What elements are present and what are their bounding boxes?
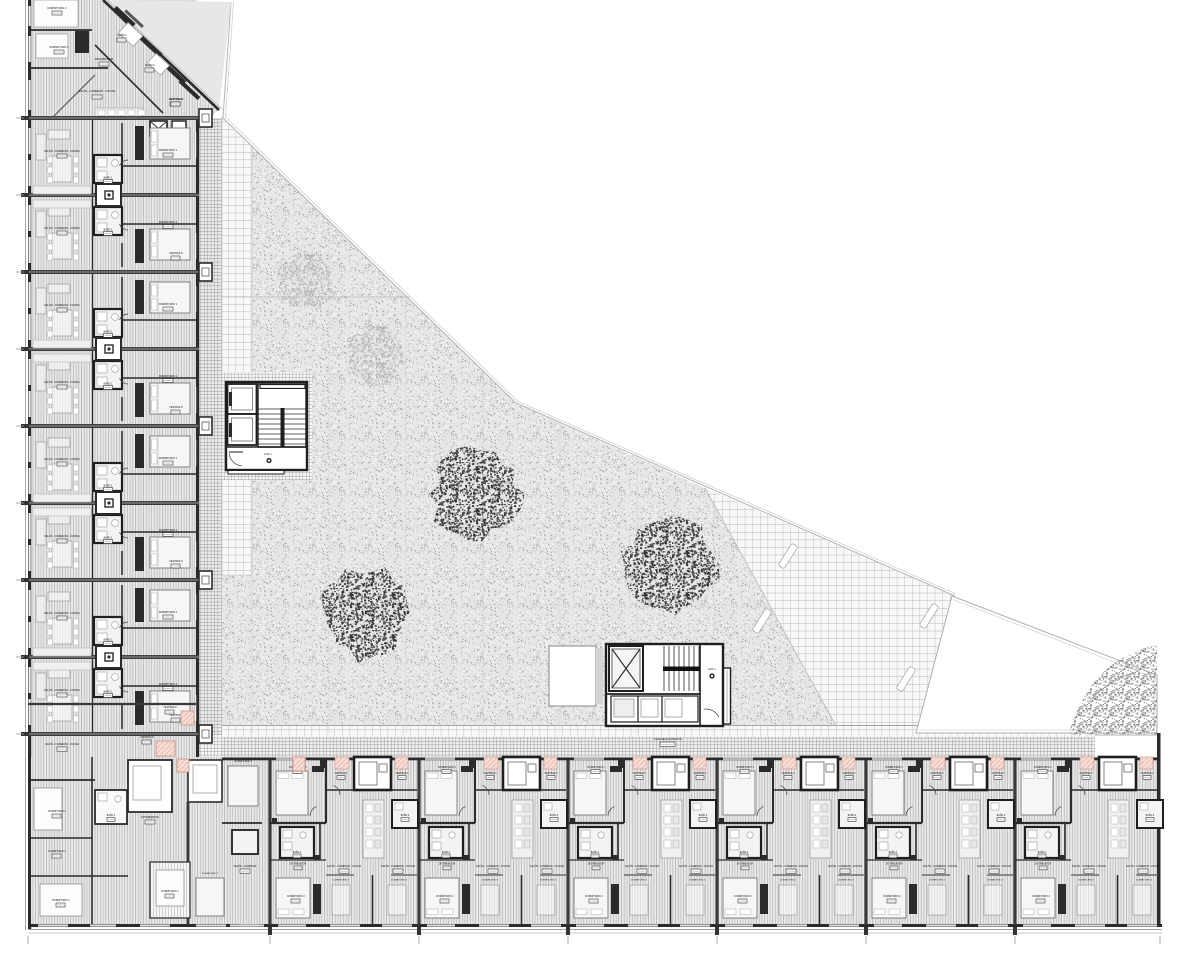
- svg-text:DISTRIBUIDOR: DISTRIBUIDOR: [886, 864, 903, 866]
- svg-text:DORMITORIO 2: DORMITORIO 2: [202, 873, 219, 875]
- svg-text:DISTRIBUIDOR: DISTRIBUIDOR: [737, 864, 754, 866]
- svg-text:BAÑO 1: BAÑO 1: [740, 851, 749, 854]
- svg-text:SALÓN - COMEDOR - COCINA: SALÓN - COMEDOR - COCINA: [44, 535, 80, 538]
- svg-text:DORMITORIO 3: DORMITORIO 3: [780, 880, 797, 882]
- svg-text:VESTIBULO: VESTIBULO: [169, 406, 183, 409]
- svg-text:DORMITORIO 1: DORMITORIO 1: [161, 890, 179, 893]
- svg-text:BAÑO 1: BAÑO 1: [104, 331, 113, 334]
- svg-text:BAÑO 1: BAÑO 1: [107, 814, 116, 817]
- svg-text:DORMITORIO 3: DORMITORIO 3: [929, 880, 946, 882]
- svg-text:BAÑO 2: BAÑO 2: [550, 814, 559, 817]
- svg-text:BAÑO 1: BAÑO 1: [104, 537, 113, 540]
- svg-text:BAÑO 1: BAÑO 1: [104, 177, 113, 180]
- svg-text:SALÓN - COMEDOR - COCINA: SALÓN - COMEDOR - COCINA: [530, 865, 565, 868]
- svg-text:BAÑO 2: BAÑO 2: [997, 814, 1006, 817]
- svg-text:DORMITORIO 1: DORMITORIO 1: [885, 766, 903, 769]
- svg-text:BAÑO 1: BAÑO 1: [293, 851, 302, 854]
- svg-text:VESTIBULO: VESTIBULO: [782, 773, 795, 775]
- svg-text:SALÓN - COMEDOR - COCINA: SALÓN - COMEDOR - COCINA: [828, 865, 863, 868]
- svg-text:DORMITORIO 3: DORMITORIO 3: [48, 850, 66, 853]
- svg-text:DISTRIBUIDOR: DISTRIBUIDOR: [95, 57, 114, 61]
- svg-text:DORMITORIO 1: DORMITORIO 1: [587, 766, 605, 769]
- svg-text:BAÑO 1: BAÑO 1: [442, 851, 451, 854]
- svg-text:DORMITORIO 3: DORMITORIO 3: [1136, 880, 1153, 882]
- svg-text:PASARELA EXTERIOR: PASARELA EXTERIOR: [654, 737, 681, 741]
- svg-text:BAÑO 2: BAÑO 2: [848, 814, 857, 817]
- svg-text:DORMITORIO 1: DORMITORIO 1: [52, 899, 70, 902]
- svg-text:SALÓN - COMEDOR - COCINA: SALÓN - COMEDOR - COCINA: [1126, 865, 1161, 868]
- svg-text:SALÓN - COMEDOR - COCINA: SALÓN - COMEDOR - COCINA: [44, 304, 80, 307]
- svg-text:SALÓN - COMEDOR: SALÓN - COMEDOR: [234, 865, 257, 868]
- svg-text:DORMITORIO 2: DORMITORIO 2: [436, 895, 454, 898]
- svg-text:VESTIBULO: VESTIBULO: [843, 773, 856, 775]
- svg-text:SALÓN - COMEDOR - COCINA: SALÓN - COMEDOR - COCINA: [44, 689, 80, 692]
- svg-text:BAÑO 1: BAÑO 1: [591, 851, 600, 854]
- svg-text:DORMITORIO 3: DORMITORIO 3: [48, 6, 68, 10]
- svg-text:DISTRIBUIDOR: DISTRIBUIDOR: [588, 864, 605, 866]
- svg-text:SALÓN - COMEDOR - COCINA: SALÓN - COMEDOR - COCINA: [44, 612, 80, 615]
- svg-text:BAÑO 1: BAÑO 1: [104, 229, 113, 232]
- svg-text:SALÓN - COMEDOR - COCINA: SALÓN - COMEDOR - COCINA: [44, 458, 80, 461]
- svg-text:VESTIBULO: VESTIBULO: [140, 736, 154, 739]
- svg-text:DORMITORIO 2: DORMITORIO 2: [50, 45, 70, 49]
- svg-text:SALÓN - COMEDOR - COCINA: SALÓN - COMEDOR - COCINA: [44, 227, 80, 230]
- svg-text:DORMITORIO 1: DORMITORIO 1: [159, 457, 178, 460]
- svg-text:DISTRIBUIDOR: DISTRIBUIDOR: [290, 864, 307, 866]
- svg-text:DORMITORIO 3: DORMITORIO 3: [333, 880, 350, 882]
- svg-text:BAÑO 1: BAÑO 1: [104, 691, 113, 694]
- svg-text:VESTIBULO: VESTIBULO: [169, 98, 183, 101]
- svg-text:DORMITORIO 3: DORMITORIO 3: [482, 880, 499, 882]
- svg-text:SALÓN - COMEDOR - COCINA: SALÓN - COMEDOR - COCINA: [381, 865, 416, 868]
- svg-text:DORMITORIO 3: DORMITORIO 3: [838, 880, 855, 882]
- svg-text:VESTIBULO: VESTIBULO: [169, 560, 183, 563]
- svg-text:VESTIBULO: VESTIBULO: [396, 773, 409, 775]
- svg-text:BAÑO 1: BAÑO 1: [104, 383, 113, 386]
- svg-text:DORMITORIO 1: DORMITORIO 1: [159, 149, 178, 152]
- svg-text:DORMITORIO 3: DORMITORIO 3: [1078, 880, 1095, 882]
- svg-text:DORMITORIO 1: DORMITORIO 1: [736, 766, 754, 769]
- svg-text:DORMITORIO 2: DORMITORIO 2: [585, 895, 603, 898]
- svg-text:SALÓN - COMEDOR - COCINA: SALÓN - COMEDOR - COCINA: [1072, 865, 1107, 868]
- svg-text:VESTIBULO: VESTIBULO: [931, 773, 944, 775]
- svg-text:BAÑO 2: BAÑO 2: [1146, 814, 1155, 817]
- svg-text:SALÓN - COMEDOR - COCINA: SALÓN - COMEDOR - COCINA: [327, 865, 362, 868]
- svg-text:DISTRIBUIDOR: DISTRIBUIDOR: [1035, 864, 1052, 866]
- svg-text:VESTIBULO: VESTIBULO: [335, 773, 348, 775]
- svg-text:VESTIBULO: VESTIBULO: [545, 773, 558, 775]
- svg-text:BAÑO 1: BAÑO 1: [889, 851, 898, 854]
- svg-text:DORMITORIO 2: DORMITORIO 2: [734, 895, 752, 898]
- svg-text:SALÓN - COMEDOR - COCINA: SALÓN - COMEDOR - COCINA: [679, 865, 714, 868]
- svg-text:VESTIBULO: VESTIBULO: [169, 252, 183, 255]
- svg-text:SALÓN - COMEDOR - COCINA: SALÓN - COMEDOR - COCINA: [44, 150, 80, 153]
- svg-text:DORMITORIO 3: DORMITORIO 3: [631, 880, 648, 882]
- svg-text:SALÓN - COMEDOR - COCINA: SALÓN - COMEDOR - COCINA: [625, 865, 660, 868]
- svg-text:VESTIBULO: VESTIBULO: [1080, 773, 1093, 775]
- svg-text:SALÓN - COMEDOR - COCINA: SALÓN - COMEDOR - COCINA: [44, 381, 80, 384]
- svg-text:DORMITORIO 3: DORMITORIO 3: [987, 880, 1004, 882]
- svg-text:SALÓN - COMEDOR - COCINA: SALÓN - COMEDOR - COCINA: [45, 743, 80, 746]
- svg-text:DORMITORIO 3: DORMITORIO 3: [540, 880, 557, 882]
- svg-text:9,84 m: 9,84 m: [708, 667, 716, 671]
- svg-text:DORMITORIO 2: DORMITORIO 2: [48, 810, 66, 813]
- svg-text:0,00 m: 0,00 m: [264, 452, 272, 456]
- svg-text:DORMITORIO 1: DORMITORIO 1: [438, 766, 456, 769]
- svg-text:BAÑO 2: BAÑO 2: [401, 814, 410, 817]
- svg-text:VESTIBULO: VESTIBULO: [1141, 773, 1154, 775]
- svg-text:DISTRIBUIDOR: DISTRIBUIDOR: [141, 816, 158, 819]
- svg-text:BAÑO 1: BAÑO 1: [1038, 851, 1047, 854]
- svg-text:DORMITORIO 1: DORMITORIO 1: [159, 303, 178, 306]
- svg-text:DORMITORIO 2: DORMITORIO 2: [287, 895, 305, 898]
- svg-text:DORMITORIO 1: DORMITORIO 1: [1034, 766, 1052, 769]
- svg-text:VESTIBULO: VESTIBULO: [694, 773, 707, 775]
- svg-text:DORMITORIO 3: DORMITORIO 3: [689, 880, 706, 882]
- svg-text:DORMITORIO 3: DORMITORIO 3: [391, 880, 408, 882]
- svg-text:VESTIBULO: VESTIBULO: [484, 773, 497, 775]
- svg-text:BAÑO 1: BAÑO 1: [104, 639, 113, 642]
- svg-text:SALÓN - COMEDOR - COCINA: SALÓN - COMEDOR - COCINA: [923, 865, 958, 868]
- svg-text:BAÑO 1: BAÑO 1: [104, 485, 113, 488]
- svg-text:DORMITORIO 1: DORMITORIO 1: [159, 611, 178, 614]
- svg-text:DORMITORIO 2: DORMITORIO 2: [1032, 895, 1050, 898]
- svg-text:BAÑO 2: BAÑO 2: [699, 814, 708, 817]
- svg-text:DISTRIBUIDOR: DISTRIBUIDOR: [439, 864, 456, 866]
- svg-text:VESTIBULO: VESTIBULO: [163, 706, 177, 709]
- svg-text:DORMITORIO 1: DORMITORIO 1: [234, 760, 252, 763]
- svg-text:VESTIBULO: VESTIBULO: [633, 773, 646, 775]
- svg-text:SALÓN - COMEDOR - COCINA: SALÓN - COMEDOR - COCINA: [977, 865, 1012, 868]
- svg-text:DORMITORIO 2: DORMITORIO 2: [883, 895, 901, 898]
- svg-text:VESTIBULO: VESTIBULO: [992, 773, 1005, 775]
- svg-text:SALÓN - COMEDOR - COCINA: SALÓN - COMEDOR - COCINA: [774, 865, 809, 868]
- svg-text:SALÓN - COMEDOR - COCINA: SALÓN - COMEDOR - COCINA: [476, 865, 511, 868]
